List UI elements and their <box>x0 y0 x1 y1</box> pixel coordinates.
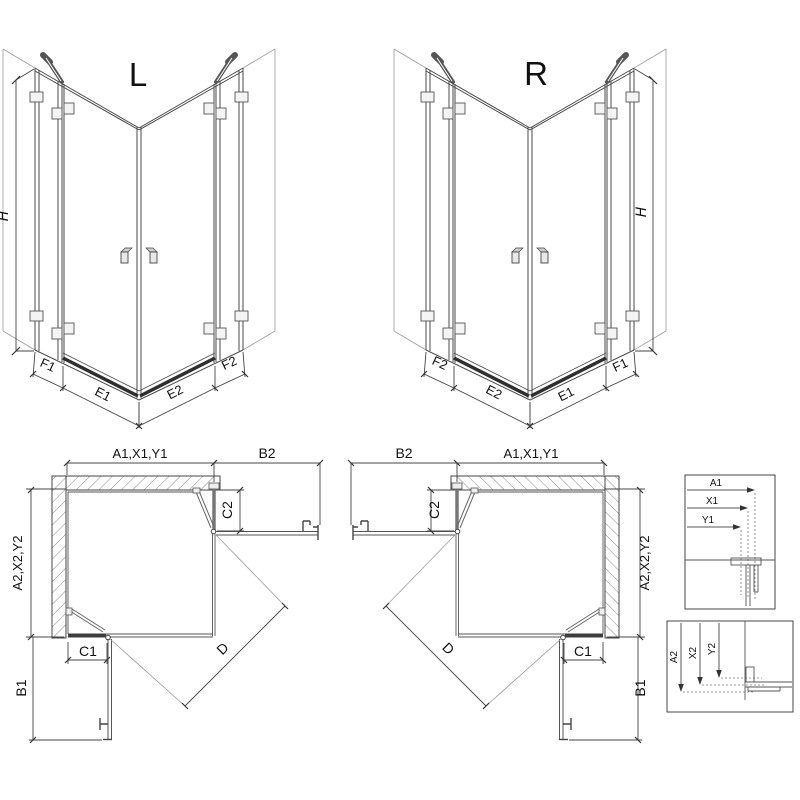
detail-box-width: A1 X1 Y1 <box>685 475 775 609</box>
technical-drawing: L H F1 E1 E2 F2 R H F2 E2 E1 F1 A1,X1,Y1… <box>0 0 800 800</box>
detail-width-x1-label: X1 <box>706 496 719 507</box>
detail-depth-dotted-lines <box>683 678 765 692</box>
detail-depth-x2-label: X2 <box>688 646 699 659</box>
iso-right-dim-e2: E2 <box>484 382 505 403</box>
detail-box-depth: A2 X2 Y2 <box>667 621 793 712</box>
plan-right-b2-label: B2 <box>395 445 412 461</box>
plan-left-c1-label: C1 <box>79 643 97 659</box>
iso-left-title: L <box>129 56 147 93</box>
plan-left-d-label: D <box>213 639 231 657</box>
detail-depth-profile <box>745 667 792 691</box>
plan-right-c1-label: C1 <box>574 643 592 659</box>
iso-view-left-labels: L H F1 E1 E2 F2 <box>0 56 239 404</box>
detail-box-width-frame <box>685 475 775 609</box>
detail-depth-y2-label: Y2 <box>707 642 718 655</box>
plan-left-depth-label: A2,X2,Y2 <box>10 536 25 591</box>
plan-left-width-label: A1,X1,Y1 <box>113 446 168 461</box>
iso-right-title: R <box>524 55 548 92</box>
iso-right-dim-f1: F1 <box>610 355 630 375</box>
plan-right-width-label: A1,X1,Y1 <box>504 446 559 461</box>
iso-left-height-label: H <box>0 210 12 221</box>
iso-right-dim-f2: F2 <box>430 353 450 373</box>
plan-left-c2-label: C2 <box>219 501 235 519</box>
detail-width-y1-label: Y1 <box>702 515 715 526</box>
detail-box-depth-frame <box>667 621 793 712</box>
iso-view-left-lines <box>3 49 275 429</box>
iso-left-dim-e2: E2 <box>164 382 185 403</box>
detail-depth-a2-label: A2 <box>669 650 680 663</box>
plan-right-depth-label: A2,X2,Y2 <box>637 536 652 591</box>
detail-width-profile <box>731 558 761 606</box>
iso-view-right-lines <box>394 49 666 429</box>
iso-right-height-label: H <box>634 206 650 217</box>
plan-view-right-lines <box>348 460 645 743</box>
detail-width-a1-label: A1 <box>710 478 723 489</box>
plan-right-c2-label: C2 <box>426 501 442 519</box>
iso-left-dim-f2: F2 <box>219 353 239 373</box>
plan-right-d-label: D <box>439 639 457 657</box>
plan-right-b1-label: B1 <box>632 679 648 696</box>
iso-left-dim-f1: F1 <box>38 355 58 375</box>
plan-left-b2-label: B2 <box>258 445 275 461</box>
plan-view-left-lines <box>26 460 323 743</box>
plan-left-b1-label: B1 <box>13 679 29 696</box>
